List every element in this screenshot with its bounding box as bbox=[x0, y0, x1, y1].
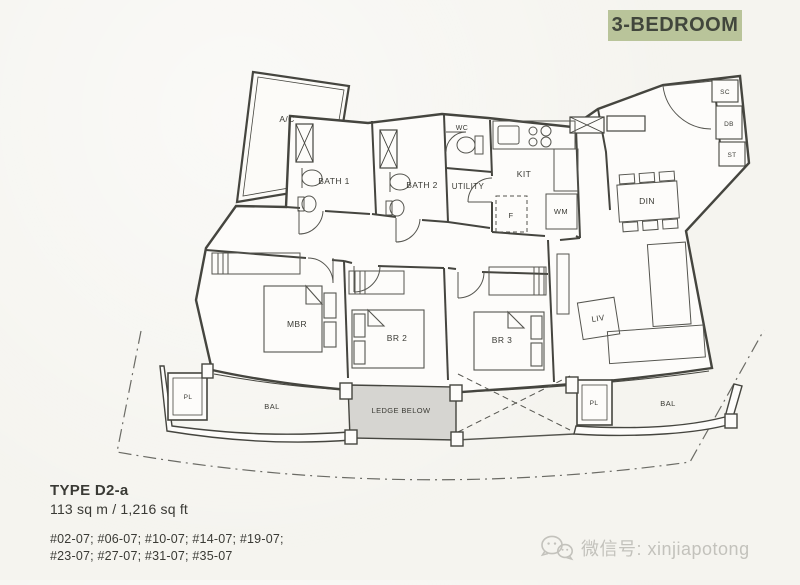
label-mbr: MBR bbox=[287, 319, 307, 329]
label-bal-left: BAL bbox=[264, 402, 279, 411]
floorplan-page: { "badge": { "label": "3-BEDROOM", "bg":… bbox=[0, 0, 800, 580]
label-db: DB bbox=[724, 121, 734, 128]
wechat-icon bbox=[540, 534, 574, 562]
label-kit: KIT bbox=[517, 169, 531, 179]
label-st: ST bbox=[727, 152, 736, 159]
label-ledge: LEDGE BELOW bbox=[372, 406, 432, 415]
unit-numbers-line2: #23-07; #27-07; #31-07; #35-07 bbox=[50, 548, 284, 565]
type-label: TYPE D2-a bbox=[50, 482, 284, 499]
right-balcony bbox=[574, 380, 742, 435]
label-br2: BR 2 bbox=[387, 333, 408, 343]
label-din: DIN bbox=[639, 196, 655, 206]
label-wc: WC bbox=[456, 125, 468, 132]
label-fridge: F bbox=[509, 211, 514, 220]
area-label: 113 sq m / 1,216 sq ft bbox=[50, 501, 284, 517]
unit-numbers-line1: #02-07; #06-07; #10-07; #14-07; #19-07; bbox=[50, 531, 284, 548]
label-ac: A/C bbox=[279, 114, 294, 124]
label-sc: SC bbox=[720, 89, 730, 96]
label-bal-right: BAL bbox=[660, 399, 675, 408]
unit-info: TYPE D2-a 113 sq m / 1,216 sq ft #02-07;… bbox=[50, 482, 284, 565]
label-wm: WM bbox=[554, 207, 568, 216]
label-utility: UTILITY bbox=[452, 182, 485, 191]
watermark: 微信号: xinjiapotong bbox=[540, 534, 750, 562]
watermark-text: 微信号: xinjiapotong bbox=[581, 535, 750, 561]
label-br3: BR 3 bbox=[492, 335, 513, 345]
label-pl-right: PL bbox=[590, 400, 599, 407]
label-bath1: BATH 1 bbox=[318, 176, 350, 186]
label-pl-left: PL bbox=[184, 394, 193, 401]
label-bath2: BATH 2 bbox=[406, 180, 438, 190]
